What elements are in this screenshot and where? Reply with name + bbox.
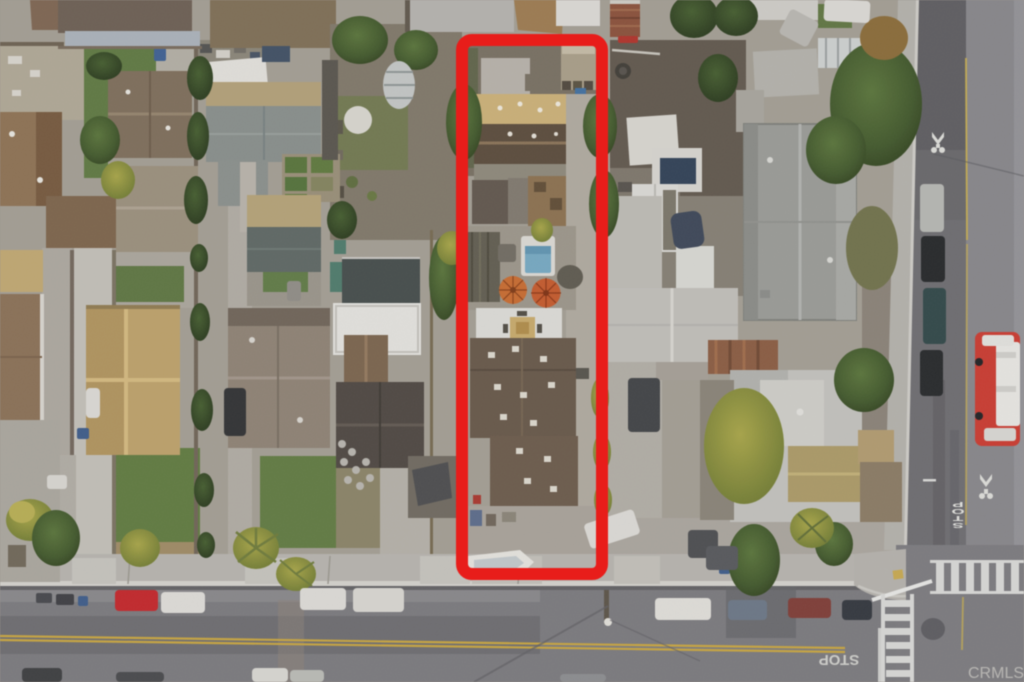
svg-text:CRMLS: CRMLS xyxy=(968,665,1024,682)
